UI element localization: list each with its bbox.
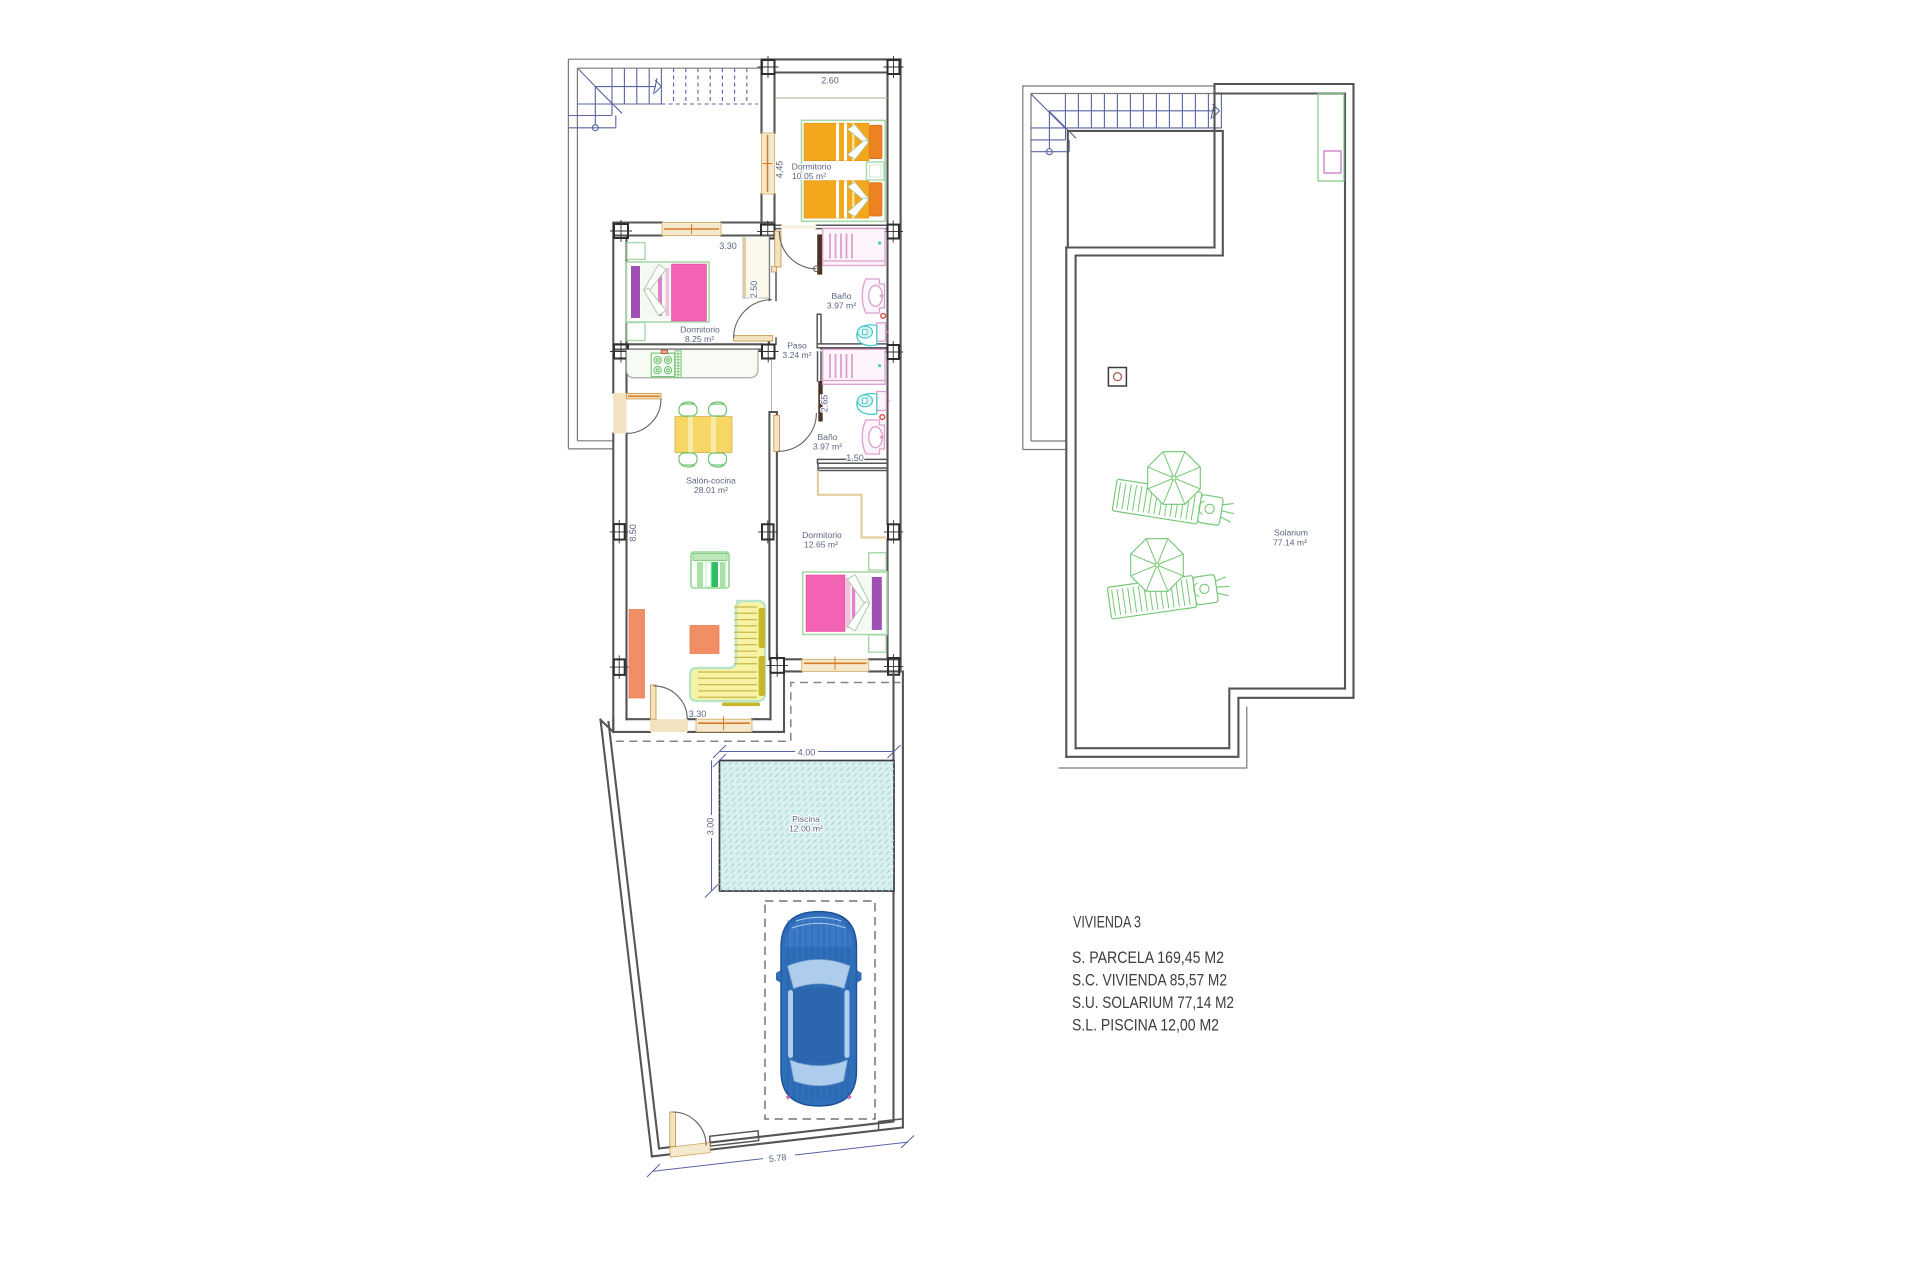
svg-text:S. PARCELA 169,45 M2: S. PARCELA 169,45 M2 [1072, 948, 1224, 967]
svg-text:Dormitorio: Dormitorio [680, 325, 720, 335]
svg-text:3.30: 3.30 [719, 241, 737, 251]
svg-text:Salón-cocina: Salón-cocina [686, 475, 736, 485]
svg-text:3.97 m²: 3.97 m² [827, 301, 856, 311]
svg-text:S.L. PISCINA 12,00 M2: S.L. PISCINA 12,00 M2 [1072, 1016, 1219, 1035]
svg-text:2.65: 2.65 [820, 395, 830, 413]
svg-text:VIVIENDA 3: VIVIENDA 3 [1073, 913, 1141, 932]
svg-text:28.01 m²: 28.01 m² [694, 485, 728, 495]
svg-text:3.24 m²: 3.24 m² [782, 350, 811, 360]
svg-text:1.50: 1.50 [846, 453, 864, 463]
svg-text:12.65 m²: 12.65 m² [804, 540, 838, 550]
svg-text:3.97 m²: 3.97 m² [813, 442, 842, 452]
svg-text:8.50: 8.50 [628, 524, 638, 542]
svg-text:77.14 m²: 77.14 m² [1273, 538, 1307, 548]
svg-text:3.30: 3.30 [689, 709, 707, 719]
svg-text:S.U. SOLARIUM 77,14 M2: S.U. SOLARIUM 77,14 M2 [1072, 993, 1234, 1012]
svg-text:2.50: 2.50 [749, 281, 759, 299]
svg-text:S.C. VIVIENDA 85,57 M2: S.C. VIVIENDA 85,57 M2 [1072, 971, 1227, 990]
svg-text:8.25 m²: 8.25 m² [685, 334, 714, 344]
svg-text:5.78: 5.78 [768, 1152, 787, 1164]
svg-text:Paso: Paso [787, 341, 807, 351]
svg-text:4.00: 4.00 [798, 748, 816, 758]
svg-text:10.05 m²: 10.05 m² [792, 171, 826, 181]
svg-text:3.00: 3.00 [706, 818, 716, 836]
svg-text:Baño: Baño [817, 432, 837, 442]
svg-text:Piscina: Piscina [792, 814, 820, 824]
svg-text:Solarium: Solarium [1274, 528, 1308, 538]
svg-text:Dormitorio: Dormitorio [792, 162, 832, 172]
svg-text:4,45: 4,45 [775, 161, 785, 179]
svg-text:Dormitorio: Dormitorio [802, 530, 842, 540]
svg-text:2.60: 2.60 [821, 76, 839, 86]
svg-text:12.00 m²: 12.00 m² [789, 824, 823, 834]
svg-text:Baño: Baño [831, 291, 851, 301]
